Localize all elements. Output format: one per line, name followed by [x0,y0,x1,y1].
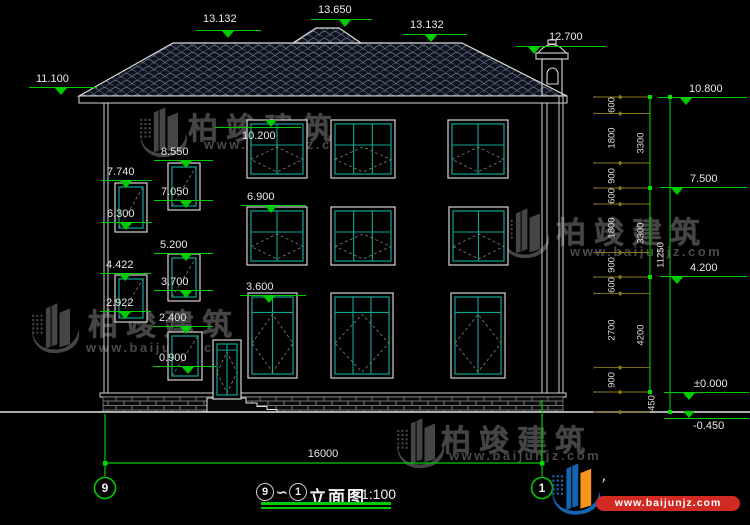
title-connector: ∽ [276,484,288,501]
level-triangle-icon [180,161,192,168]
level-label: 4.200 [690,262,718,274]
level-triangle-icon [120,223,132,230]
level-triangle-icon [339,20,351,27]
level-label: 5.200 [160,239,188,251]
total-width-dimension: 16000 [300,448,346,460]
level-label: 10.200 [242,130,276,142]
level-line [658,97,747,98]
drawing-scale: 1:100 [361,486,396,502]
dimension-text: 900 [607,257,618,273]
level-label: 10.800 [689,83,723,95]
level-triangle-icon [180,291,192,298]
title-underline-2 [261,507,391,509]
level-triangle-icon [263,296,275,303]
dimension-text: 900 [607,372,618,388]
title-circle-9: 9 [256,483,274,501]
annotation-layer: 16000 9 1 9 ∽ 1 立面图 1:100 13.13213.65013… [0,0,750,525]
level-label: -0.450 [693,420,724,432]
level-label: 6.300 [107,208,135,220]
level-triangle-icon [55,88,67,95]
brand-logo-icon [548,458,600,518]
level-triangle-icon [119,274,131,281]
brand-logo-url: www.baijunjz.com [596,496,740,511]
level-label: 2.922 [106,297,134,309]
level-triangle-icon [265,206,277,213]
cad-elevation-canvas: 柏竣建筑www.baijunjz.com柏竣建筑www.baijunjz.com… [0,0,750,525]
level-label: 0.900 [159,352,187,364]
level-label: 3.700 [161,276,189,288]
level-triangle-icon [683,411,695,418]
grid-bubble-9: 9 [94,481,116,495]
level-triangle-icon [120,181,132,188]
level-label: 2.400 [159,312,187,324]
level-label: 7.740 [107,166,135,178]
level-line [664,418,749,419]
brand-logo-url-text: www.baijunjz.com [615,497,722,509]
level-label: 13.132 [410,19,444,31]
level-triangle-icon [180,201,192,208]
dimension-text: 450 [647,395,658,411]
level-label: ±0.000 [694,378,728,390]
level-triangle-icon [680,98,692,105]
dimension-text: 11250 [656,242,667,268]
level-triangle-icon [671,277,683,284]
dimension-text: 3300 [636,132,647,153]
level-triangle-icon [425,35,437,42]
level-label: 13.650 [318,4,352,16]
dimension-text: 1800 [607,127,618,148]
dimension-text: 3300 [636,222,647,243]
dimension-text: 600 [607,277,618,293]
level-label: 12.700 [549,31,583,43]
brand-logo: 柏竣建筑 www.baijunjz.com [548,456,748,522]
level-label: 11.100 [36,73,69,85]
level-triangle-icon [683,393,695,400]
dimension-text: 2700 [607,319,618,340]
level-triangle-icon [180,327,192,334]
level-label: 3.600 [246,281,274,293]
level-label: 7.050 [161,186,189,198]
level-label: 4.422 [106,259,134,271]
level-triangle-icon [182,367,194,374]
level-label: 13.132 [203,13,237,25]
level-label: 7.500 [690,173,718,185]
level-line [215,127,301,128]
dimension-text: 600 [607,188,618,204]
title-circle-1: 1 [289,483,307,501]
level-triangle-icon [528,47,540,54]
level-triangle-icon [180,254,192,261]
level-label: 8.550 [161,146,189,158]
level-triangle-icon [222,31,234,38]
dimension-text: 1800 [607,217,618,238]
dimension-text: 900 [607,168,618,184]
dimension-text: 4200 [636,324,647,345]
level-label: 6.900 [247,191,275,203]
level-triangle-icon [671,188,683,195]
level-triangle-icon [119,312,131,319]
level-line [664,392,749,393]
level-triangle-icon [265,120,277,127]
title-underline [261,502,391,505]
dimension-text: 600 [607,97,618,113]
